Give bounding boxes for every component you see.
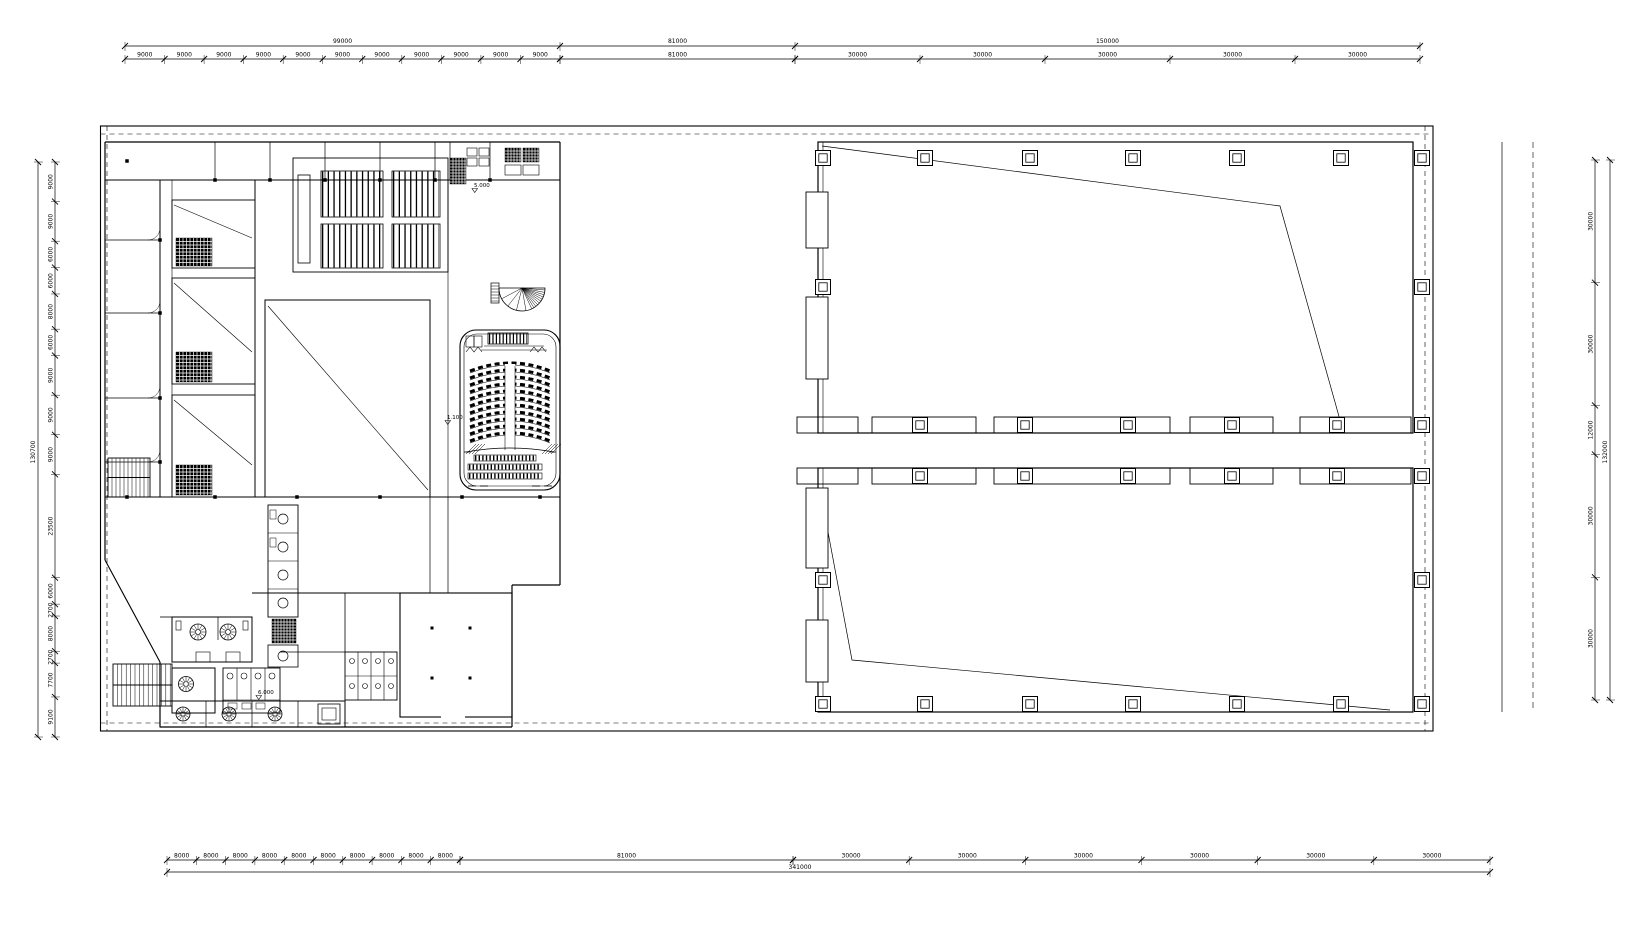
dim-label: 6000 xyxy=(48,273,55,288)
column xyxy=(816,697,831,712)
round-table xyxy=(272,716,274,720)
dim-label: 81000 xyxy=(668,38,687,45)
ramp-hatch xyxy=(542,444,552,454)
dimension-chain-left: 9000900060006000800060009000900090002350… xyxy=(30,159,60,740)
column xyxy=(1415,697,1430,712)
stack-cell xyxy=(268,645,298,667)
wc-fixture xyxy=(389,659,394,664)
dim-label: 9000 xyxy=(48,407,55,422)
column xyxy=(1415,573,1430,588)
column xyxy=(1126,151,1141,166)
round-table xyxy=(200,628,205,631)
column-dot xyxy=(378,178,382,182)
service-cell xyxy=(467,158,477,166)
floor-plan-drawing: 5.0001.1006.000 990008100015000090009000… xyxy=(0,0,1650,927)
exhibition-column-grid xyxy=(816,151,1430,712)
door-swing xyxy=(148,386,160,398)
round-table xyxy=(199,634,202,639)
wc-fixture xyxy=(376,684,381,689)
pit-hatch xyxy=(522,288,539,303)
aisle xyxy=(505,364,515,450)
column xyxy=(1334,151,1349,166)
door-opening xyxy=(441,715,465,720)
dim-label: 30000 xyxy=(1588,506,1595,525)
booth-cell xyxy=(466,336,474,347)
pit-spoke xyxy=(502,288,522,299)
column-dot xyxy=(323,178,327,182)
column xyxy=(1225,418,1240,433)
ramp-edge xyxy=(174,205,252,238)
dim-label: 8000 xyxy=(379,853,394,860)
round-table xyxy=(226,716,228,720)
elevation-label: 6.000 xyxy=(258,690,274,696)
dim-label: 30000 xyxy=(1306,853,1325,860)
column-dot xyxy=(433,178,437,182)
ramp-hatch xyxy=(548,444,558,454)
column-dot xyxy=(488,178,492,182)
door-swing xyxy=(148,228,160,240)
stack-fixture xyxy=(278,542,288,552)
round-table xyxy=(188,685,193,688)
dim-label: 9000 xyxy=(48,447,55,462)
corridor-strip xyxy=(1300,468,1411,484)
fixture xyxy=(176,621,181,630)
dim-label: 81000 xyxy=(668,52,687,59)
dim-label: 8000 xyxy=(262,853,277,860)
fixture xyxy=(243,621,248,630)
round-table xyxy=(180,716,182,720)
dim-label: 9000 xyxy=(335,52,350,59)
dim-label: 9100 xyxy=(48,709,55,724)
column xyxy=(1415,280,1430,295)
column xyxy=(1126,697,1141,712)
dim-label: 6000 xyxy=(48,247,55,262)
ramp-hatch xyxy=(466,444,476,454)
round-table xyxy=(231,715,235,717)
column-dot xyxy=(158,460,162,464)
ramp-edge xyxy=(174,283,252,352)
round-table xyxy=(182,678,185,683)
banquet-hall xyxy=(400,593,512,717)
partition-diagonal xyxy=(822,146,1340,420)
column xyxy=(1018,469,1033,484)
dim-label: 9000 xyxy=(295,52,310,59)
dim-label: 30000 xyxy=(973,52,992,59)
column xyxy=(816,280,831,295)
ramp-hatch xyxy=(475,444,485,454)
column-dot xyxy=(431,677,434,680)
round-table xyxy=(224,634,227,639)
column-dot xyxy=(268,178,272,182)
column xyxy=(816,573,831,588)
round-table xyxy=(196,630,201,635)
dim-label: 8000 xyxy=(350,853,365,860)
dimension-chain-top: 9900081000150000900090009000900090009000… xyxy=(122,38,1423,64)
column-dot xyxy=(378,495,382,499)
dim-label: 81000 xyxy=(617,853,636,860)
round-table xyxy=(187,686,190,691)
round-table xyxy=(226,708,228,712)
round-table xyxy=(276,708,278,712)
stack-fixture xyxy=(278,651,288,661)
dim-label: 8000 xyxy=(321,853,336,860)
dim-label: 7700 xyxy=(48,672,55,687)
threshold xyxy=(226,652,240,662)
banquet-room xyxy=(172,668,215,713)
column-dot xyxy=(295,495,299,499)
dim-label: 132000 xyxy=(1602,440,1609,463)
column-dot xyxy=(125,495,129,499)
service-cell xyxy=(479,148,489,156)
round-table xyxy=(272,708,274,712)
dim-label: 8000 xyxy=(174,853,189,860)
column xyxy=(1334,697,1349,712)
round-table xyxy=(277,715,281,717)
wc-sink xyxy=(242,703,251,709)
dim-label: 2700 xyxy=(48,649,55,664)
wc-fixture xyxy=(350,659,355,664)
round-table xyxy=(221,633,226,636)
dim-label: 30000 xyxy=(1588,334,1595,353)
dim-label: 9000 xyxy=(216,52,231,59)
exhibition-halls xyxy=(797,142,1413,712)
dim-label: 12000 xyxy=(1588,420,1595,439)
round-table xyxy=(191,628,196,631)
round-table xyxy=(194,625,197,630)
upper-hall xyxy=(818,142,1413,433)
dim-label: 9000 xyxy=(453,52,468,59)
round-table xyxy=(180,708,182,712)
ramp-units xyxy=(172,200,255,497)
dim-label: 2700 xyxy=(48,602,55,617)
round-table xyxy=(184,682,189,687)
round-table xyxy=(229,634,232,639)
column-dot xyxy=(460,495,464,499)
column xyxy=(1415,418,1430,433)
dim-label: 9000 xyxy=(493,52,508,59)
round-table xyxy=(200,633,205,636)
dim-label: 6000 xyxy=(48,583,55,598)
column-dot xyxy=(213,178,217,182)
fixture xyxy=(270,538,276,547)
rack-room-wall xyxy=(293,158,448,272)
wc-fixture xyxy=(255,673,261,679)
dim-label: 30000 xyxy=(1223,52,1242,59)
column-dot xyxy=(431,627,434,630)
entrance-vestibule xyxy=(806,297,828,379)
column xyxy=(913,418,928,433)
column xyxy=(1330,469,1345,484)
round-table xyxy=(180,680,185,683)
dim-label: 9000 xyxy=(48,214,55,229)
ramp-edge xyxy=(268,306,428,490)
dim-label: 30000 xyxy=(1098,52,1117,59)
column xyxy=(816,151,831,166)
dim-label: 8000 xyxy=(48,304,55,319)
column-dot xyxy=(158,311,162,315)
column xyxy=(1230,151,1245,166)
dim-label: 8000 xyxy=(203,853,218,860)
projection-booth xyxy=(488,333,528,344)
service-cell xyxy=(479,158,489,166)
dim-label: 30000 xyxy=(842,853,861,860)
dim-label: 99000 xyxy=(333,38,352,45)
round-table xyxy=(182,686,185,691)
ramp-hatch xyxy=(545,444,555,454)
wc-fixture xyxy=(376,659,381,664)
entrance-vestibule xyxy=(806,192,828,248)
dim-label: 9000 xyxy=(48,174,55,189)
dim-label: 30000 xyxy=(1588,629,1595,648)
column xyxy=(1121,418,1136,433)
stack-fixture xyxy=(278,514,288,524)
round-table xyxy=(185,715,189,717)
column xyxy=(1023,697,1038,712)
threshold xyxy=(196,652,210,662)
round-table xyxy=(194,634,197,639)
wc-fixture xyxy=(269,673,275,679)
dim-label: 8000 xyxy=(408,853,423,860)
cad-floor-plan-page: 5.0001.1006.000 990008100015000090009000… xyxy=(0,0,1650,927)
hall-wall xyxy=(265,300,430,497)
stack-fixture xyxy=(278,598,288,608)
lower-hall xyxy=(818,468,1413,712)
column-dot xyxy=(538,495,542,499)
round-table xyxy=(180,685,185,688)
elevation-label: 5.000 xyxy=(474,183,490,189)
round-table xyxy=(221,628,226,631)
dim-label: 30000 xyxy=(1348,52,1367,59)
round-table xyxy=(230,708,232,712)
dim-label: 30000 xyxy=(958,853,977,860)
booth-cell xyxy=(474,336,482,347)
column xyxy=(1230,697,1245,712)
column xyxy=(918,151,933,166)
service-cell xyxy=(505,165,521,175)
round-table xyxy=(230,628,235,631)
hatched-core xyxy=(176,352,212,382)
round-table xyxy=(230,716,232,720)
dim-label: 8000 xyxy=(291,853,306,860)
auditorium xyxy=(460,283,561,490)
central-hall xyxy=(265,300,430,497)
entrance-vestibule xyxy=(806,620,828,682)
dim-label: 341000 xyxy=(789,864,812,871)
level-symbol xyxy=(256,696,262,700)
elevation-label: 1.100 xyxy=(447,415,463,421)
round-table xyxy=(184,716,186,720)
round-table xyxy=(191,633,196,636)
round-table xyxy=(188,680,193,683)
wc-sink xyxy=(256,703,265,709)
dim-label: 30000 xyxy=(1588,212,1595,231)
column-dot xyxy=(213,495,217,499)
round-table xyxy=(226,630,231,635)
staircases xyxy=(108,458,172,706)
corridor-strip xyxy=(1300,417,1411,433)
hatched-core xyxy=(176,465,212,495)
dim-label: 9000 xyxy=(137,52,152,59)
column xyxy=(1415,469,1430,484)
column xyxy=(1121,469,1136,484)
sanitary-blocks xyxy=(223,505,397,713)
dim-label: 30000 xyxy=(848,52,867,59)
round-table xyxy=(184,708,186,712)
level-symbol xyxy=(472,189,478,193)
column-dot xyxy=(125,159,129,163)
service-cell xyxy=(523,165,539,175)
rack-storage-room xyxy=(293,158,448,272)
corridor-strip xyxy=(797,417,858,433)
wc-fixture xyxy=(350,684,355,689)
column xyxy=(1330,418,1345,433)
dim-label: 150000 xyxy=(1096,38,1119,45)
dim-label: 23500 xyxy=(48,516,55,535)
dim-label: 30000 xyxy=(1422,853,1441,860)
left-building-walls xyxy=(105,142,560,727)
column-dot xyxy=(469,677,472,680)
entrance-vestibule xyxy=(806,488,828,568)
partition-diagonal xyxy=(822,500,1390,710)
dim-label: 8000 xyxy=(48,626,55,641)
column xyxy=(918,697,933,712)
zigzag xyxy=(466,347,482,352)
ramp-hatch xyxy=(472,444,482,454)
round-table xyxy=(199,625,202,630)
round-table xyxy=(276,716,278,720)
corner-cell xyxy=(318,704,340,724)
dimension-chain-right: 3000030000120003000030000132000 xyxy=(1588,157,1616,703)
dim-label: 9000 xyxy=(533,52,548,59)
column xyxy=(1225,469,1240,484)
dimension-chain-bottom: 8000800080008000800080008000800080008000… xyxy=(164,853,1493,878)
service-cell xyxy=(467,148,477,156)
stack-fixture xyxy=(278,570,288,580)
wall-line xyxy=(105,560,160,662)
fixture xyxy=(270,510,276,519)
round-table xyxy=(224,625,227,630)
round-table xyxy=(229,625,232,630)
dim-label: 30000 xyxy=(1074,853,1093,860)
round-table xyxy=(177,715,181,717)
dim-label: 8000 xyxy=(438,853,453,860)
column xyxy=(1018,418,1033,433)
dim-label: 130700 xyxy=(30,440,37,463)
column xyxy=(1023,151,1038,166)
column xyxy=(913,469,928,484)
dim-label: 9000 xyxy=(256,52,271,59)
ramp-edge xyxy=(174,400,252,465)
dim-label: 9000 xyxy=(374,52,389,59)
corner-cell xyxy=(322,708,336,720)
wc-fixture xyxy=(241,673,247,679)
wc-fixture xyxy=(389,684,394,689)
round-table xyxy=(187,678,190,683)
wc-fixture xyxy=(363,659,368,664)
wc-fixture xyxy=(363,684,368,689)
round-table xyxy=(273,712,277,716)
dim-label: 30000 xyxy=(1190,853,1209,860)
hatched-core xyxy=(450,158,466,184)
corridor-strip xyxy=(797,468,858,484)
round-table xyxy=(269,715,273,717)
wc-fixture xyxy=(227,673,233,679)
dim-label: 9000 xyxy=(414,52,429,59)
dim-label: 8000 xyxy=(233,853,248,860)
screen-wall xyxy=(298,175,310,263)
dim-label: 6000 xyxy=(48,335,55,350)
zigzag xyxy=(530,347,546,352)
column-dot xyxy=(469,627,472,630)
round-table xyxy=(227,712,231,716)
dim-label: 9000 xyxy=(48,368,55,383)
round-table xyxy=(223,715,227,717)
column-dot xyxy=(158,396,162,400)
door-swing xyxy=(148,301,160,313)
column-dot xyxy=(158,238,162,242)
round-table xyxy=(230,633,235,636)
dim-label: 9000 xyxy=(177,52,192,59)
column xyxy=(1415,151,1430,166)
ramp-hatch xyxy=(469,444,479,454)
